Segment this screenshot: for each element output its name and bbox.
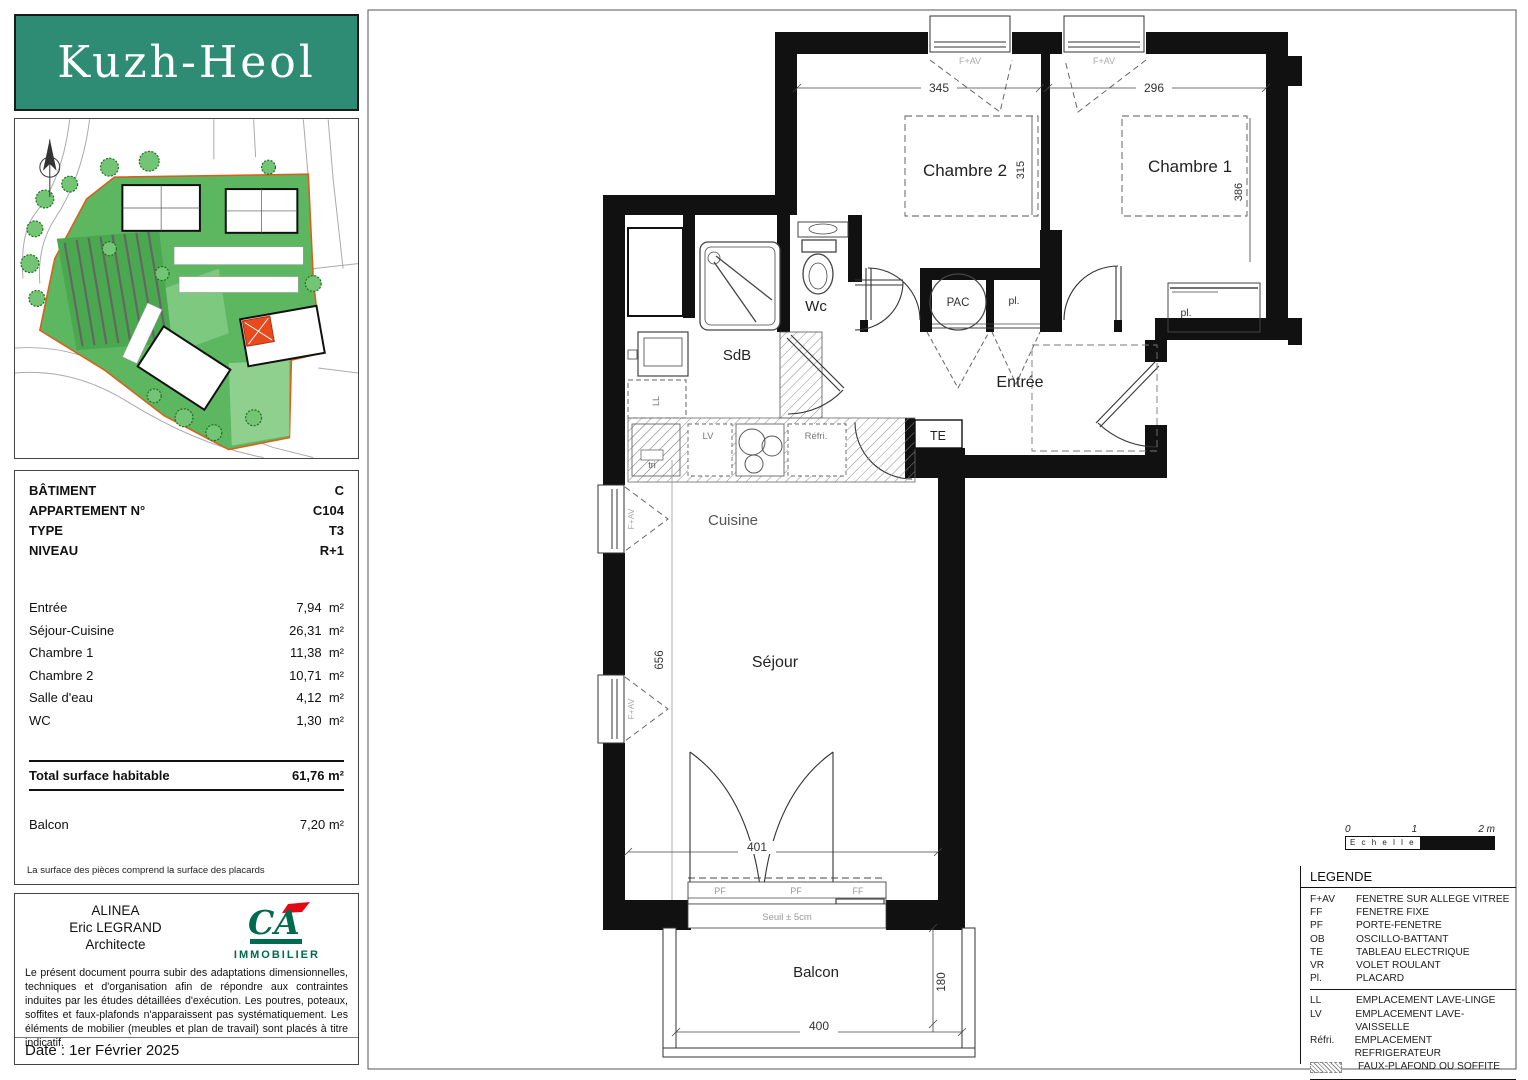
refri-label: Réfri. [805,431,828,442]
dim-ch1-width: 296 [1144,81,1164,95]
te-label: TE [930,429,946,443]
document-date: Date : 1er Février 2025 [15,1037,358,1064]
tri-label: tri [648,460,656,470]
legend-divider [1310,989,1516,990]
window-label: F+AV [959,56,981,66]
pf-label: PF [790,886,802,896]
pl-label: pl. [1008,295,1019,307]
dim-sejour-width: 401 [747,840,767,854]
washbasin [628,332,688,376]
room-area-list: Entrée7,94 m² Séjour-Cuisine26,31 m² Cha… [29,597,344,732]
compass-icon [40,139,60,197]
technical-duct [628,228,683,316]
total-area-row: Total surface habitable 61,76 m² [29,760,344,791]
dim-ch2-width: 345 [929,81,949,95]
legend-item: OBOSCILLO-BATTANT [1310,933,1516,946]
window-label: F+AV [626,698,636,719]
lv-label: LV [703,431,715,442]
area-row: Entrée7,94 m² [29,597,344,620]
architect-name: Eric LEGRAND [25,919,206,936]
window-swings-top [930,60,1146,112]
room-label-chambre1: Chambre 1 [1148,157,1232,176]
area-row: Chambre 210,71 m² [29,665,344,688]
architect-firm: ALINEA [25,902,206,919]
room-label-sejour: Séjour [752,654,799,671]
ff-label: FF [853,886,864,896]
surface-footnote: La surface des pièces comprend la surfac… [27,865,265,876]
architect-names: ALINEA Eric LEGRAND Architecte [25,902,206,961]
doors [690,266,1159,905]
room-label-wc: Wc [805,298,827,315]
scale-tick-2: 2 m [1478,824,1495,835]
dim-ch2-depth: 315 [1015,161,1027,179]
scale-tick-1: 1 [1412,824,1418,835]
dim-ch1-depth: 386 [1233,183,1245,201]
legend-item: Réfri.EMPLACEMENT REFRIGERATEUR [1310,1034,1516,1060]
legend-panel: LEGENDE F+AVFENETRE SUR ALLEGE VITREE FF… [1300,866,1516,1064]
toilet [802,240,836,294]
project-title: Kuzh-Heol [57,37,316,88]
architect-role: Architecte [25,936,206,953]
spec-row: BÂTIMENTC [29,481,344,501]
ca-logo-letters: CA [248,903,300,942]
scale-bar: 0 1 2 m E c h e l l e [1345,824,1495,850]
architect-panel: ALINEA Eric LEGRAND Architecte CA IMMOBI… [14,893,359,1065]
legend-title: LEGENDE [1301,866,1516,888]
window-sejour [598,675,624,743]
spec-row: NIVEAUR+1 [29,541,344,561]
balcony [663,928,975,1057]
lawn-patch-2 [229,360,290,446]
area-row: Séjour-Cuisine26,31 m² [29,620,344,643]
pf-label: PF [714,886,726,896]
scale-bar-label: E c h e l l e [1346,837,1421,849]
wc-sink [798,222,848,237]
area-row: Chambre 111,38 m² [29,642,344,665]
legend-item: Pl.PLACARD [1310,972,1516,985]
window-chambre2 [930,16,1010,52]
area-row: Salle d'eau4,12 m² [29,687,344,710]
ll-label: LL [651,396,661,406]
window-label: F+AV [626,508,636,529]
dim-sejour-depth: 656 [654,650,666,669]
room-label-entree: Entrée [996,374,1043,391]
dim-balcon-depth: 180 [936,972,948,991]
legend-item: LVEMPLACEMENT LAVE-VAISSELLE [1310,1008,1516,1034]
seuil-label: Seuil ± 5cm [762,912,812,923]
legend-item: F+AVFENETRE SUR ALLEGE VITREE [1310,893,1516,906]
legend-item: TETABLEAU ELECTRIQUE [1310,946,1516,959]
hatch-swatch-icon [1310,1062,1342,1073]
site-plan [14,118,359,459]
window-cuisine [598,485,624,553]
pl-label-ch1: pl. [1180,307,1191,319]
ca-logo-mark: CA [238,902,316,946]
kitchen-counter [628,418,915,482]
legend-item: FAUX-PLAFOND OU SOFFITE [1310,1060,1516,1075]
spec-row: TYPET3 [29,521,344,541]
room-label-cuisine: Cuisine [708,512,758,529]
pac-label: PAC [947,297,970,309]
entree-ceiling-zone [1032,345,1157,451]
room-label-chambre2: Chambre 2 [923,161,1007,180]
scale-bar-fill [1421,837,1495,849]
apartment-info-panel: BÂTIMENTC APPARTEMENT N°C104 TYPET3 NIVE… [14,470,359,885]
window-label: F+AV [1093,56,1115,66]
shower [700,242,780,330]
room-label-balcon: Balcon [793,964,839,981]
legend-item: LLEMPLACEMENT LAVE-LINGE [1310,994,1516,1007]
area-row: WC1,30 m² [29,710,344,733]
spec-row: APPARTEMENT N°C104 [29,501,344,521]
legend-item: FFFENETRE FIXE [1310,906,1516,919]
balcony-area-row: Balcon 7,20 m² [29,817,344,832]
window-chambre1 [1064,16,1144,52]
project-logo: Kuzh-Heol [14,14,359,111]
ca-immobilier-logo: CA IMMOBILIER [206,902,348,961]
legend-item: PFPORTE-FENETRE [1310,919,1516,932]
scale-tick-0: 0 [1345,824,1351,835]
room-label-sdb: SdB [723,347,751,364]
ca-logo-label: IMMOBILIER [206,949,348,961]
dim-balcon-width: 400 [809,1019,829,1033]
site-plan-drawing [15,119,358,458]
legend-item: VRVOLET ROULANT [1310,959,1516,972]
